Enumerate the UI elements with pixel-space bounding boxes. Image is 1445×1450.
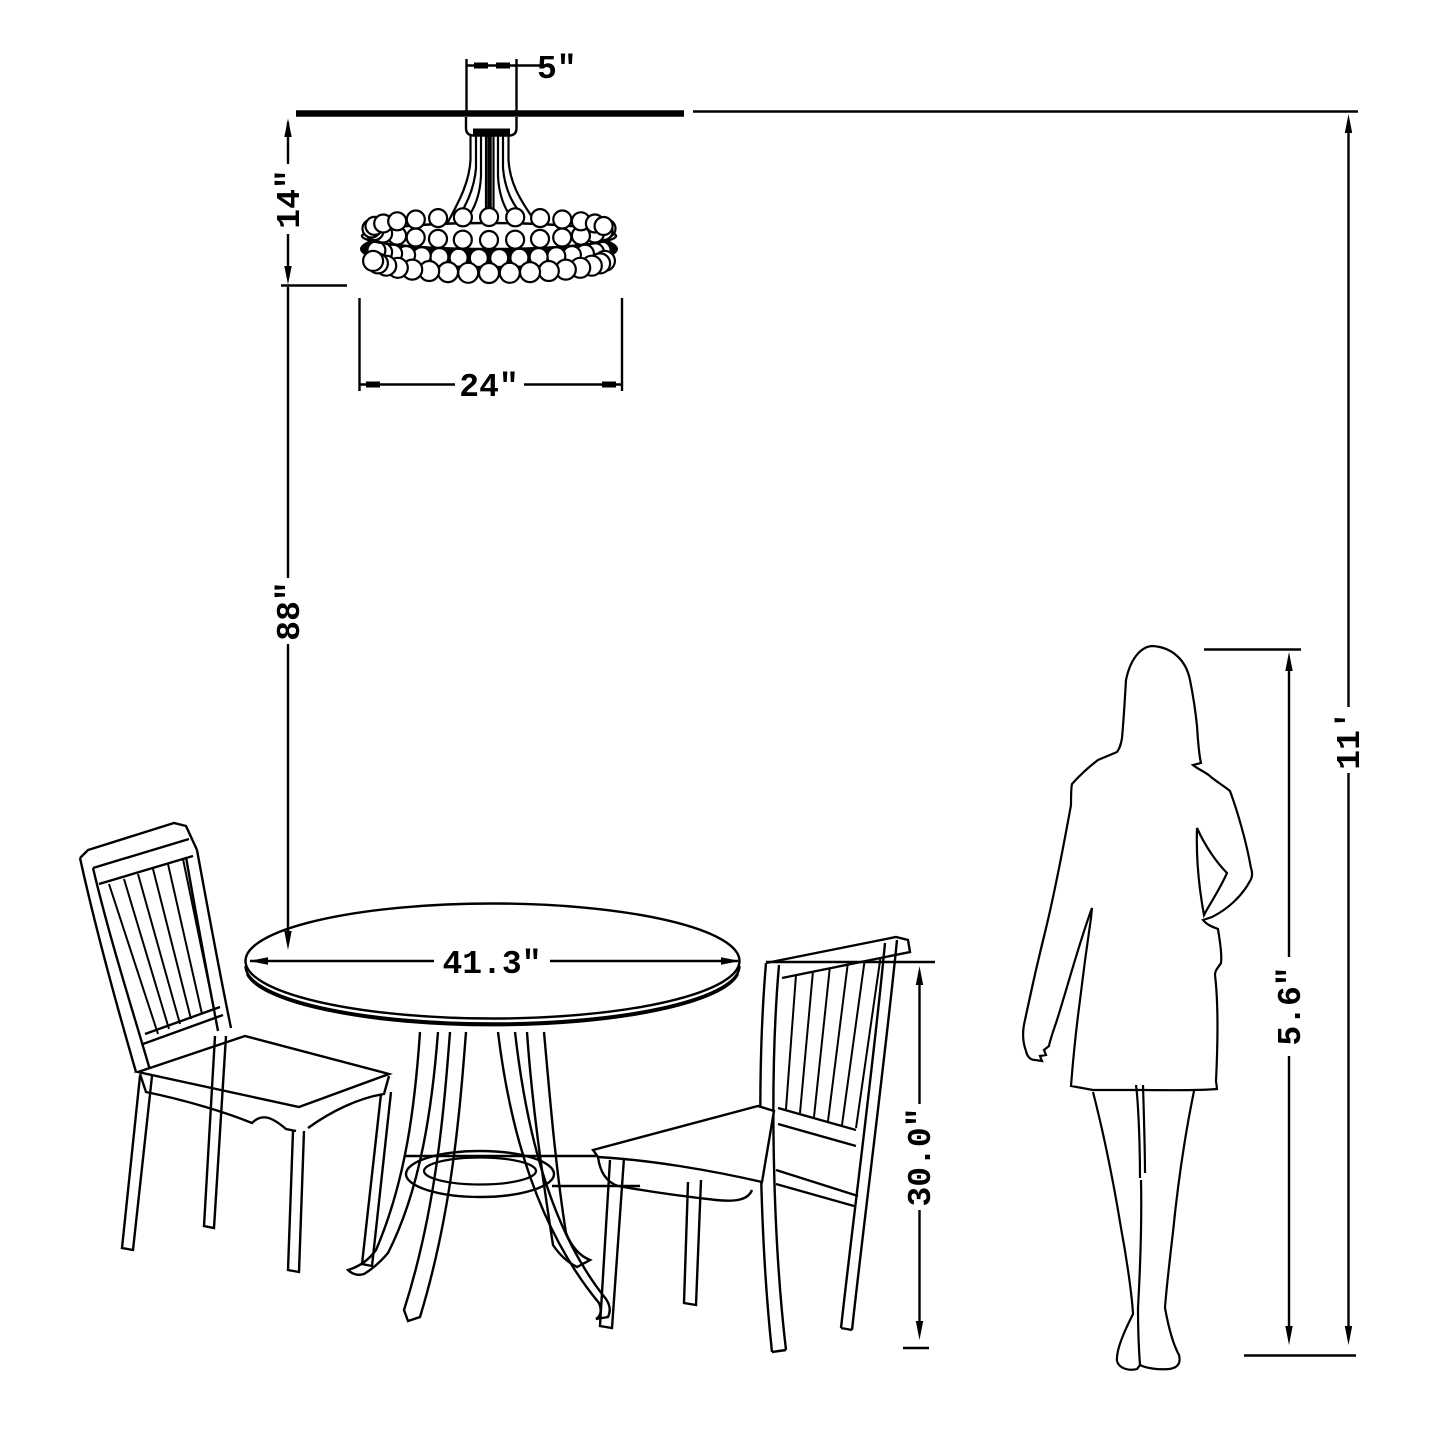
svg-text:5": 5" <box>537 51 577 88</box>
svg-text:24": 24" <box>459 369 518 406</box>
svg-text:5.6": 5.6" <box>1273 966 1310 1045</box>
svg-text:14": 14" <box>272 169 309 228</box>
svg-text:88": 88" <box>272 581 309 640</box>
svg-text:11': 11' <box>1332 710 1369 769</box>
svg-text:30.0": 30.0" <box>903 1107 940 1206</box>
svg-text:41.3": 41.3" <box>442 946 541 983</box>
